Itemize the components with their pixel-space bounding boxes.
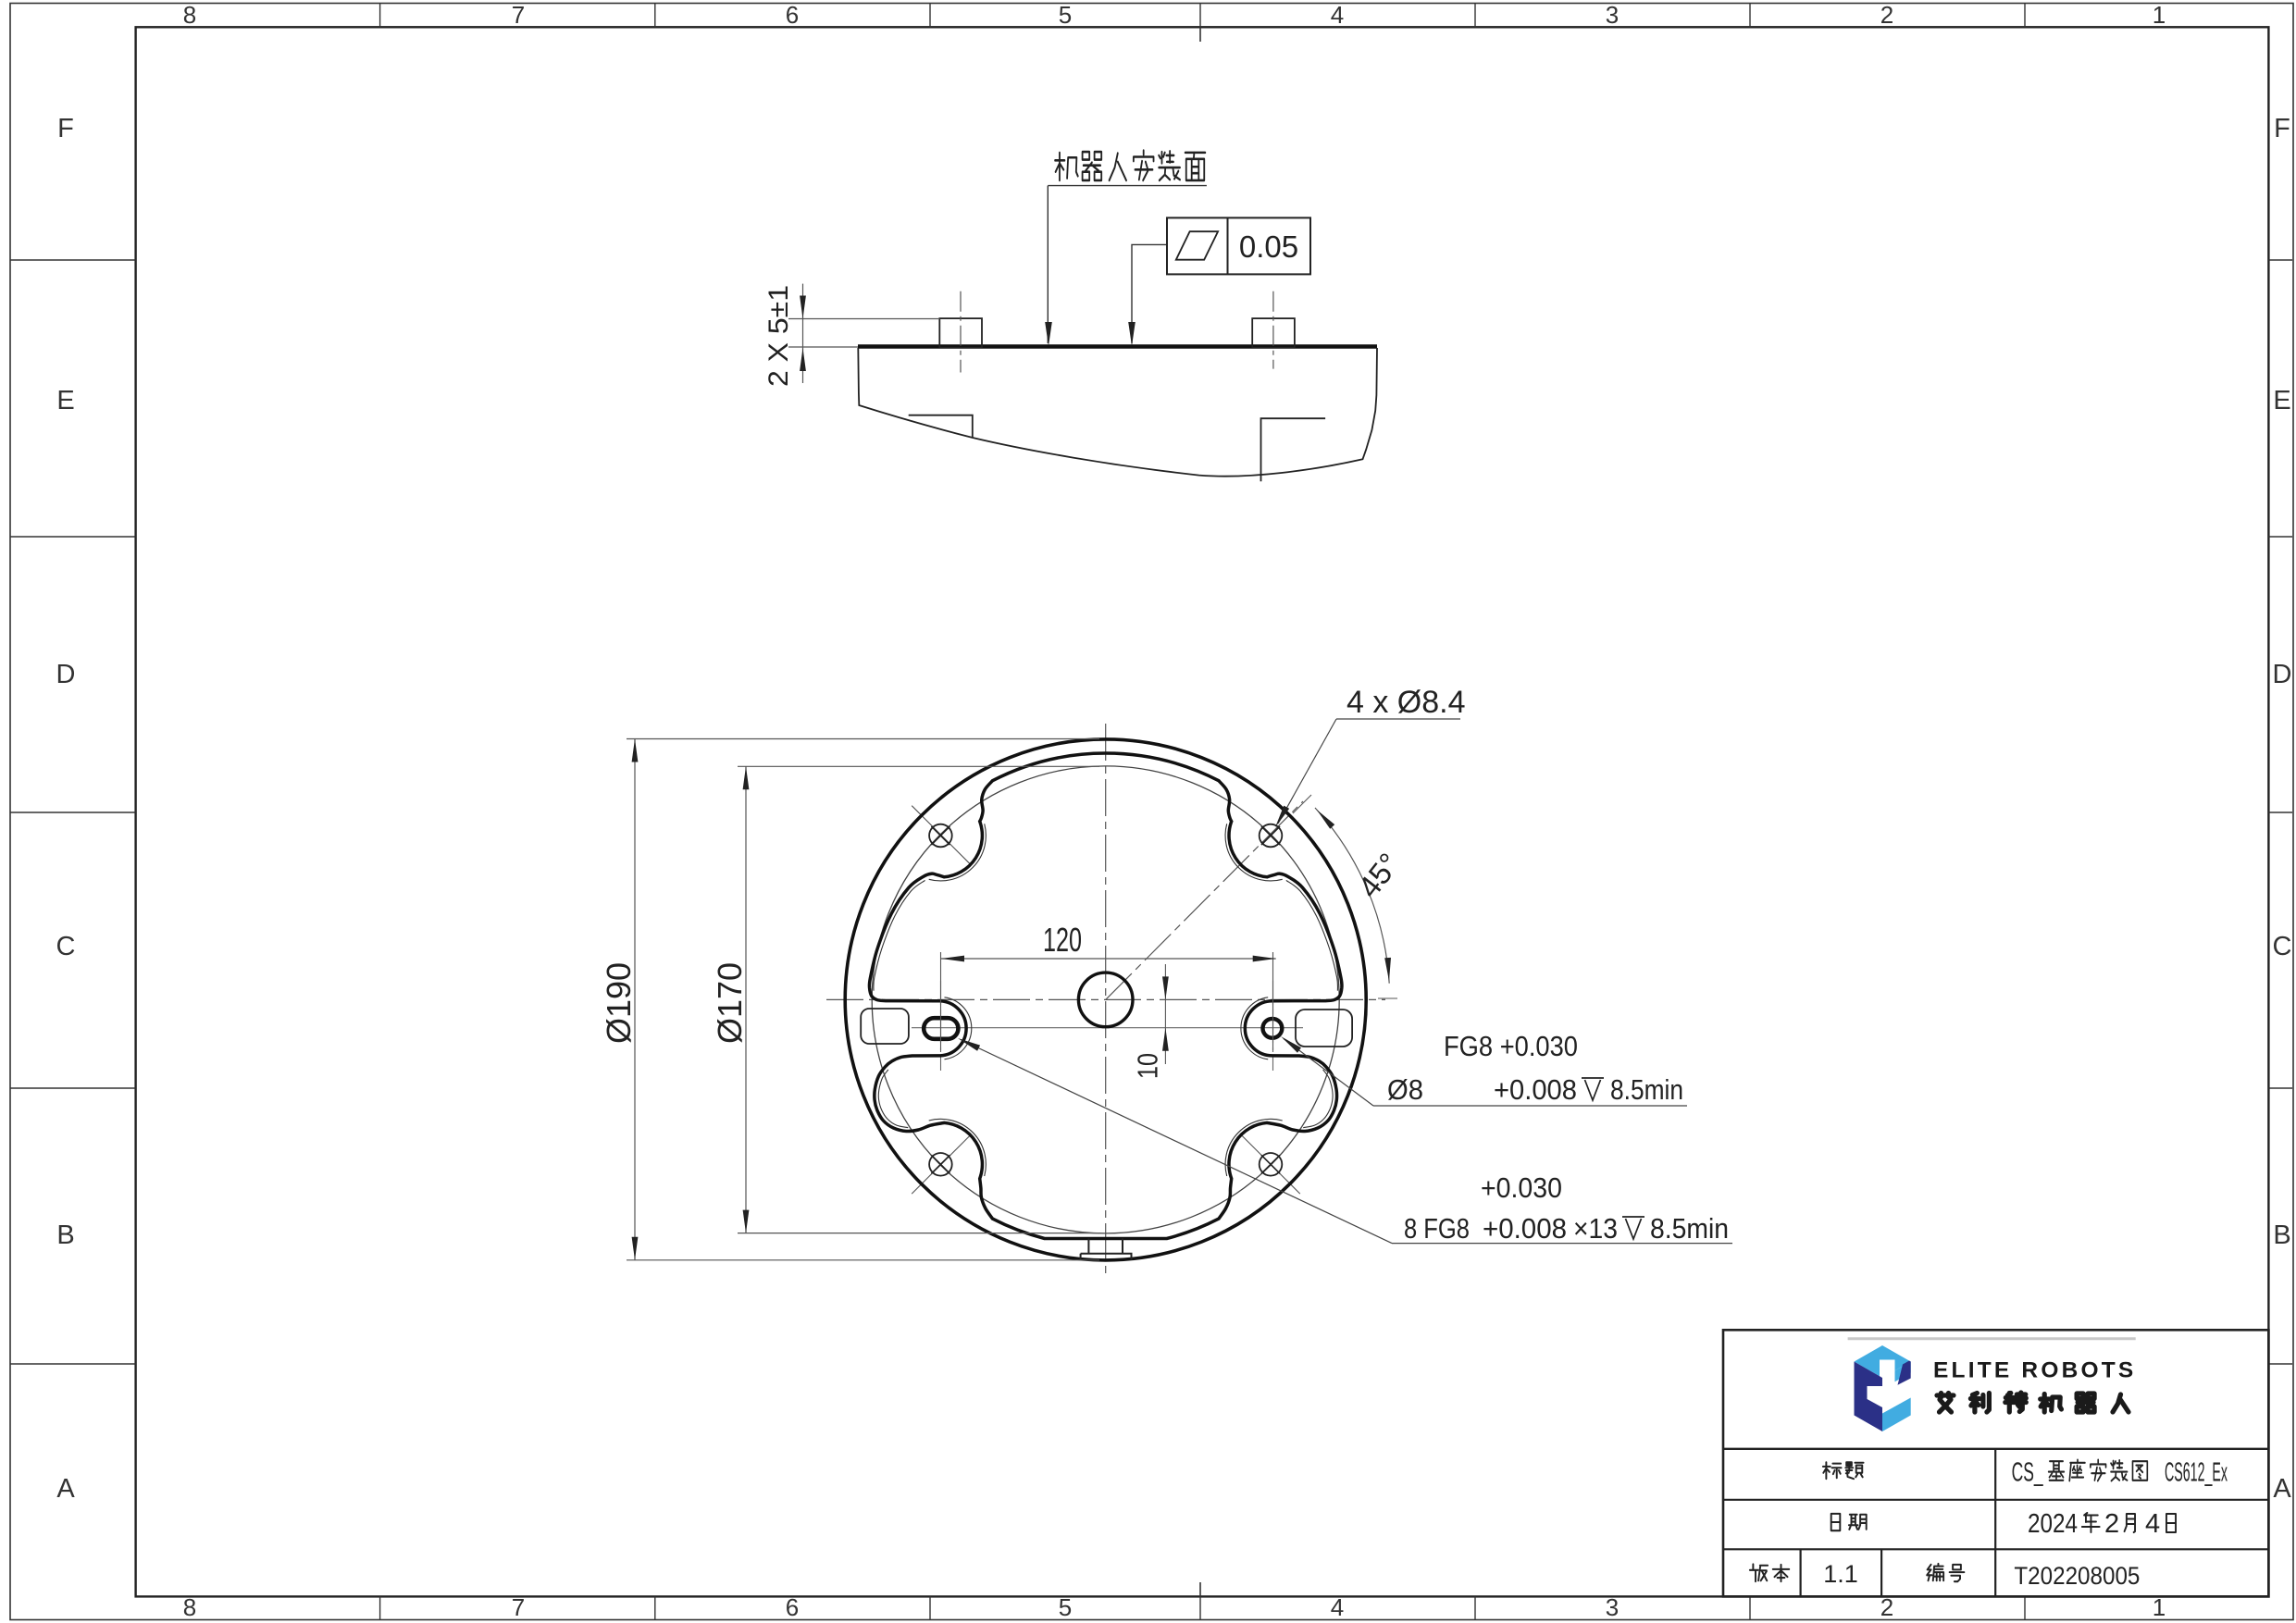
svg-text:+0.008: +0.008 xyxy=(1494,1073,1577,1106)
svg-text:CS_: CS_ xyxy=(2012,1458,2044,1488)
svg-text:Ø8: Ø8 xyxy=(1387,1073,1423,1106)
svg-text:8.5min: 8.5min xyxy=(1650,1212,1729,1245)
svg-text:F: F xyxy=(57,114,74,143)
svg-text:CS612_Ex: CS612_Ex xyxy=(2165,1458,2228,1488)
svg-text:C: C xyxy=(2273,932,2292,961)
svg-text:120: 120 xyxy=(1043,921,1082,959)
svg-text:T202208005: T202208005 xyxy=(2014,1562,2140,1590)
svg-text:8.5min: 8.5min xyxy=(1610,1073,1683,1106)
svg-text:B: B xyxy=(2273,1220,2290,1250)
svg-text:1.1: 1.1 xyxy=(1823,1560,1858,1588)
svg-text:D: D xyxy=(56,660,76,689)
svg-text:8 FG8: 8 FG8 xyxy=(1404,1212,1470,1245)
svg-text:3: 3 xyxy=(1606,1,1619,29)
svg-text:×13: ×13 xyxy=(1573,1212,1618,1245)
svg-text:4: 4 xyxy=(1331,1593,1344,1621)
svg-text:E: E xyxy=(56,386,74,415)
svg-text:10: 10 xyxy=(1132,1053,1164,1079)
svg-text:+0.008: +0.008 xyxy=(1483,1212,1567,1245)
svg-text:2: 2 xyxy=(2104,1509,2119,1539)
svg-text:5: 5 xyxy=(1059,1593,1072,1621)
svg-text:4: 4 xyxy=(1331,1,1344,29)
svg-text:E: E xyxy=(2273,386,2290,415)
svg-text:Ø170: Ø170 xyxy=(711,962,749,1044)
svg-text:Ø190: Ø190 xyxy=(600,962,638,1044)
svg-text:2: 2 xyxy=(1880,1,1893,29)
svg-text:4: 4 xyxy=(2145,1509,2160,1539)
svg-text:F: F xyxy=(2274,114,2290,143)
svg-text:1: 1 xyxy=(2153,1,2166,29)
svg-text:FG8 +0.030: FG8 +0.030 xyxy=(1444,1030,1578,1062)
svg-text:A: A xyxy=(56,1474,75,1504)
svg-text:2 X 5±1: 2 X 5±1 xyxy=(763,285,794,387)
svg-text:+0.030: +0.030 xyxy=(1481,1171,1562,1204)
svg-text:5: 5 xyxy=(1059,1,1072,29)
svg-text:4 x Ø8.4: 4 x Ø8.4 xyxy=(1347,685,1466,720)
svg-text:A: A xyxy=(2273,1474,2291,1504)
svg-text:C: C xyxy=(56,932,76,961)
svg-text:7: 7 xyxy=(512,1,525,29)
svg-text:ELITE ROBOTS: ELITE ROBOTS xyxy=(1933,1358,2136,1383)
svg-text:8: 8 xyxy=(183,1593,196,1621)
svg-text:2024: 2024 xyxy=(2028,1509,2078,1539)
svg-text:3: 3 xyxy=(1606,1593,1619,1621)
svg-text:B: B xyxy=(56,1220,74,1250)
svg-text:7: 7 xyxy=(512,1593,525,1621)
svg-text:6: 6 xyxy=(786,1593,799,1621)
svg-text:D: D xyxy=(2273,660,2292,689)
svg-text:6: 6 xyxy=(786,1,799,29)
svg-text:8: 8 xyxy=(183,1,196,29)
svg-text:0.05: 0.05 xyxy=(1239,229,1298,264)
